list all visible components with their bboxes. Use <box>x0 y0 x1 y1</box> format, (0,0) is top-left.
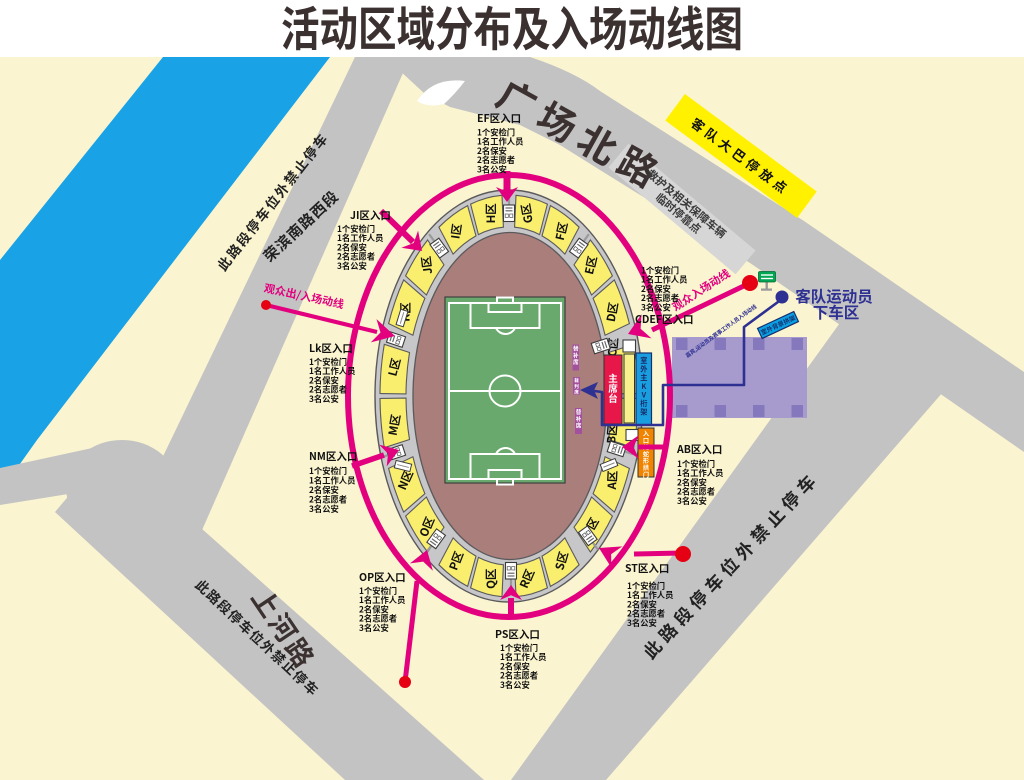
svg-text:3名公安: 3名公安 <box>309 393 339 405</box>
svg-text:席: 席 <box>573 358 579 366</box>
svg-text:活动区域分布及入场动线图: 活动区域分布及入场动线图 <box>281 0 743 60</box>
svg-text:I区: I区 <box>447 222 465 240</box>
svg-text:台: 台 <box>608 391 618 405</box>
svg-text:3名公安: 3名公安 <box>500 679 530 691</box>
svg-text:H区: H区 <box>483 203 499 224</box>
svg-text:3名公安: 3名公安 <box>627 617 657 629</box>
svg-text:A区: A区 <box>604 470 621 491</box>
svg-text:ST区入口: ST区入口 <box>625 561 669 576</box>
svg-text:3名公安: 3名公安 <box>337 260 367 272</box>
svg-text:门: 门 <box>643 470 649 479</box>
svg-text:3名公安: 3名公安 <box>309 503 339 515</box>
svg-text:3名公安: 3名公安 <box>677 495 707 507</box>
svg-text:OP区入口: OP区入口 <box>359 570 406 585</box>
svg-text:架: 架 <box>640 408 647 418</box>
svg-text:3名公安: 3名公安 <box>359 622 389 634</box>
svg-text:EF区入口: EF区入口 <box>477 111 521 126</box>
svg-text:3名公安: 3名公安 <box>641 301 671 313</box>
svg-text:AB区入口: AB区入口 <box>676 442 722 457</box>
svg-text:Lk区入口: Lk区入口 <box>309 341 353 356</box>
svg-text:JI区入口: JI区入口 <box>350 208 391 223</box>
svg-text:下车区: 下车区 <box>813 301 860 323</box>
svg-text:J区: J区 <box>418 255 436 275</box>
svg-text:PS区入口: PS区入口 <box>495 627 540 642</box>
svg-text:3名公安: 3名公安 <box>477 163 507 175</box>
svg-text:Q区: Q区 <box>483 568 499 589</box>
svg-text:CDEF区入口: CDEF区入口 <box>635 312 694 327</box>
svg-text:NM区入口: NM区入口 <box>309 449 357 464</box>
svg-text:席: 席 <box>574 389 579 396</box>
svg-text:席: 席 <box>576 422 582 430</box>
